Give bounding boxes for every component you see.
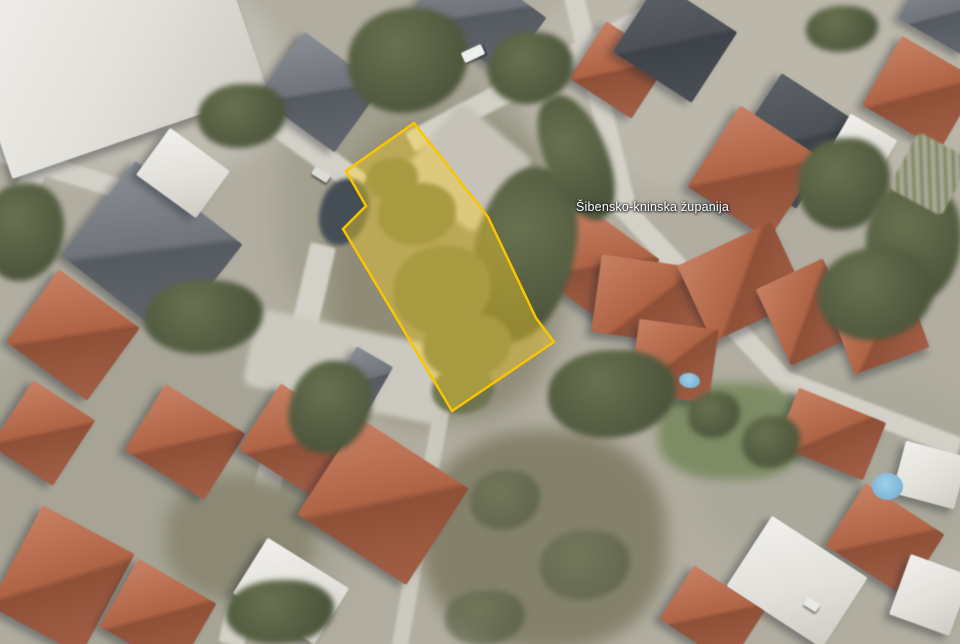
- swimming-pool: [872, 473, 903, 500]
- satellite-map-canvas[interactable]: Šibensko-kninska županija: [0, 0, 960, 644]
- tree-cluster: [0, 183, 64, 281]
- map-label: Šibensko-kninska županija: [576, 200, 729, 214]
- tree-cluster: [548, 350, 676, 438]
- tree-cluster: [198, 84, 286, 148]
